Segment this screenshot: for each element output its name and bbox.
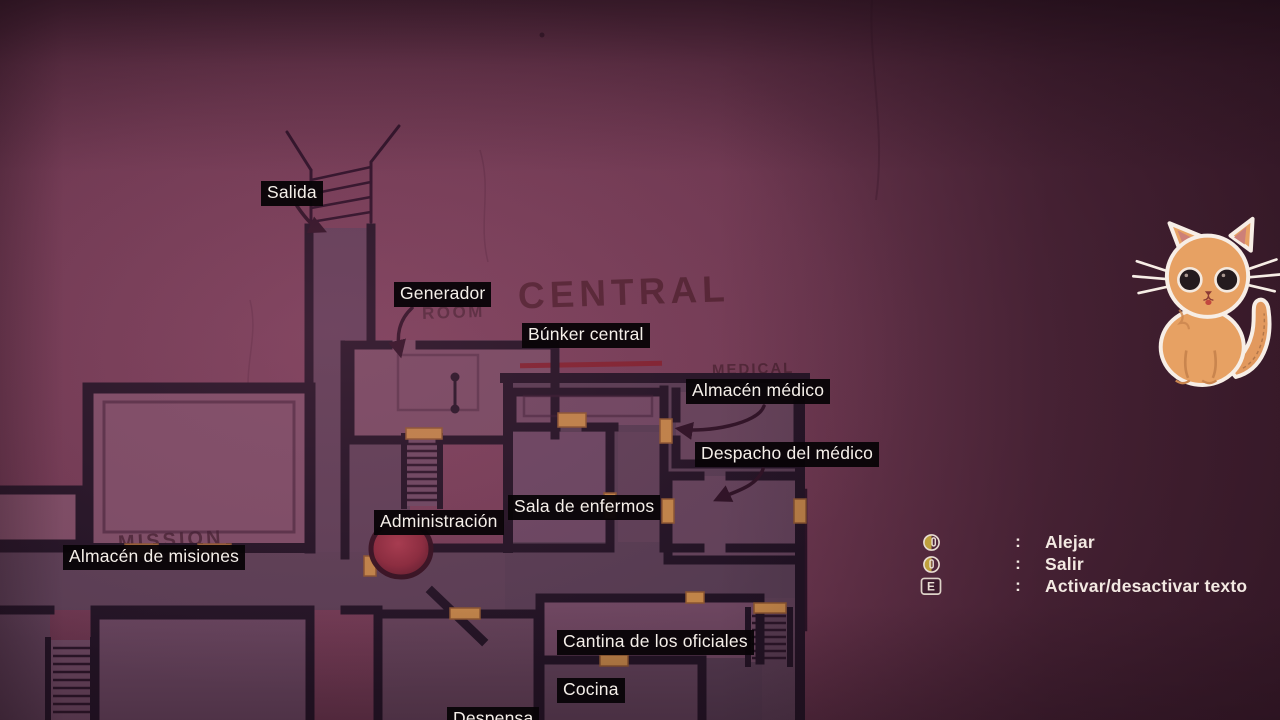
legend-row-zoom-out: : Alejar <box>919 531 1247 553</box>
map-label-bunker-central: Búnker central <box>522 323 650 348</box>
map-label-despensa: Despensa <box>447 707 539 720</box>
legend-row-exit: : Salir <box>919 553 1247 575</box>
painted-central: CENTRAL <box>517 268 730 316</box>
map-label-sala-de-enfermos: Sala de enfermos <box>508 495 660 520</box>
cat-cursor-sticker <box>1128 203 1280 404</box>
exit-ladder <box>287 126 399 226</box>
map-label-cantina-de-los-oficiales: Cantina de los oficiales <box>557 630 754 655</box>
game-map-screen: CENTRAL ROOM MEDICAL MISSION <box>0 0 1280 720</box>
map-label-salida: Salida <box>261 181 323 206</box>
legend-label-zoom-out: Alejar <box>1045 532 1095 553</box>
map-label-cocina: Cocina <box>557 678 625 703</box>
map-label-despacho-del-medico: Despacho del médico <box>695 442 879 467</box>
mouse-button-icon <box>919 555 943 574</box>
map-label-almacen-de-misiones: Almacén de misiones <box>63 545 245 570</box>
map-label-generador: Generador <box>394 282 491 307</box>
legend-row-toggle-text: E : Activar/desactivar texto <box>919 575 1247 597</box>
bunker-map[interactable]: CENTRAL ROOM MEDICAL MISSION <box>0 0 1280 720</box>
controls-legend: : Alejar : Salir E : Activar/des <box>919 531 1247 597</box>
key-e-icon: E <box>919 577 943 596</box>
legend-colon: : <box>1011 576 1025 596</box>
legend-colon: : <box>1011 532 1025 552</box>
legend-label-exit: Salir <box>1045 554 1084 575</box>
mouse-scroll-icon <box>919 533 943 552</box>
svg-text:E: E <box>927 579 935 593</box>
map-label-almacen-medico: Almacén médico <box>686 379 830 404</box>
legend-label-toggle-text: Activar/desactivar texto <box>1045 576 1247 597</box>
legend-colon: : <box>1011 554 1025 574</box>
map-label-administracion: Administración <box>374 510 504 535</box>
